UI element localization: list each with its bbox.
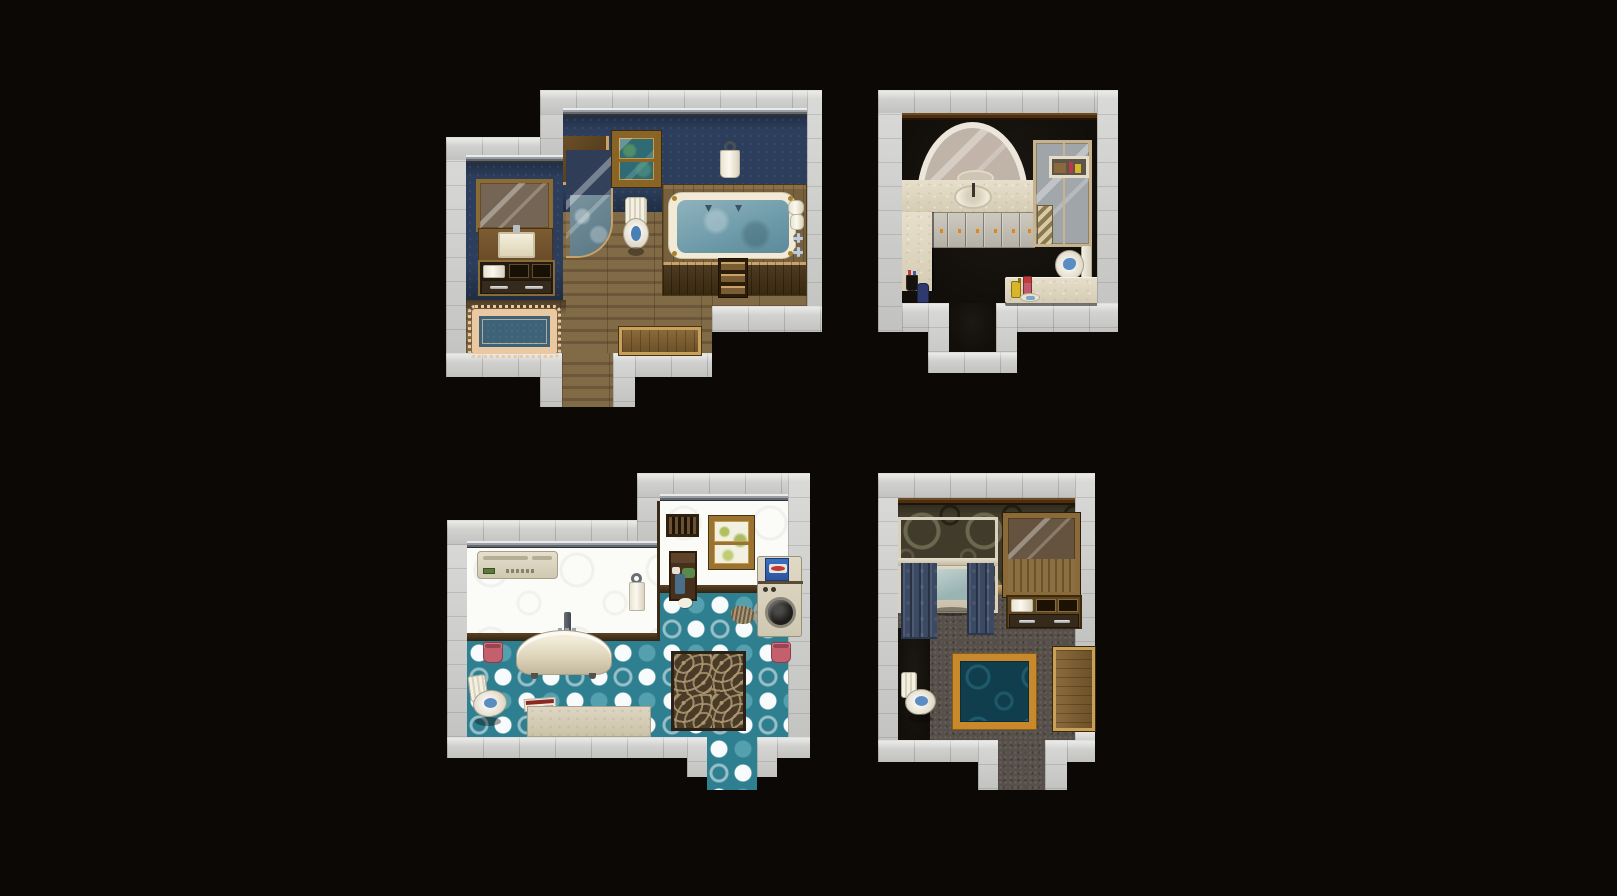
room-navy-wood-bathroom [446,88,822,408]
tub-foot [589,673,596,679]
wall-left [446,137,466,375]
room-dark-spa-bathroom [878,473,1095,790]
vent-grate [666,514,699,537]
wall-doorway-right [1045,740,1067,790]
wall-bottom-right [1067,740,1095,762]
wall-cap [878,473,1095,498]
toilet-shadow [475,717,501,726]
pink-bucket[interactable] [483,642,503,663]
toilet[interactable] [623,195,649,258]
teal-rug [953,654,1036,729]
shelf-box [1054,163,1066,173]
blue-rug [472,309,557,354]
clothes-white [672,567,680,574]
sink-faucet-icon [972,183,975,197]
mirror-glass [1008,518,1075,559]
wall-bottom-right [1017,303,1118,332]
doorway-floor[interactable] [562,353,613,407]
faucet-cross [793,233,803,243]
knob [1028,229,1031,233]
doorway-floor[interactable] [998,740,1045,790]
shower-cabin[interactable] [1033,140,1092,247]
wall-faucet-handles[interactable] [791,232,806,258]
towel-roll [790,214,804,230]
mirror-glass [480,183,549,228]
tub-water-view [936,569,970,600]
rug-field [478,315,551,348]
wall-left [447,520,467,758]
platform-steps[interactable] [718,258,748,298]
toilet[interactable] [899,672,937,724]
wall-bottom-right [777,737,810,758]
towel-ring[interactable] [627,573,647,612]
washer-knob [763,587,768,592]
wall-doorway-right [613,353,635,407]
tub-bolt [672,196,677,201]
tub-foot [531,673,538,679]
drawer-handle [490,286,508,289]
wall-right [807,90,822,332]
wall-bottom [447,737,687,758]
blue-bottle[interactable] [917,283,929,303]
floor-mat [527,706,651,737]
drawer-handle [1054,620,1070,623]
wall-left [878,473,898,762]
towel-rolls[interactable] [786,200,807,232]
folded-towels [483,265,505,278]
toilet-water [631,226,641,241]
doorway-floor[interactable] [707,737,757,790]
washer-knob [771,587,776,592]
drawer-handle [525,286,543,289]
towel-ring[interactable] [717,141,743,180]
dropped-cloth [678,598,692,608]
ac-label [506,569,536,573]
towel-roll [788,200,804,215]
window-crossbar [619,158,654,162]
sink-counter[interactable] [478,228,553,262]
shower-curtain-right[interactable] [967,563,994,635]
wall-doorway-left [540,353,562,407]
cubby [1058,599,1078,612]
wall-rail-main [563,108,807,116]
bucket-rim [485,644,501,648]
wall-left [878,90,902,332]
drawer-handle [1019,620,1035,623]
room-marble-dark-bathroom [878,88,1118,373]
wooden-mat [619,327,701,355]
shelf-cubby [532,264,551,278]
shower-shelf [1049,156,1089,178]
toilet[interactable] [467,675,507,727]
tub-bolt [672,251,677,256]
toilet-water [484,698,497,708]
bathtub[interactable] [668,192,796,259]
sink-faucet-icon [513,225,520,233]
wall-bottom-left [878,740,978,762]
shower-curtain-left[interactable] [901,563,937,639]
window[interactable] [709,516,754,569]
wall-right [1097,90,1118,332]
toilet-water [915,696,928,706]
wall-bottom-mid [635,353,712,377]
wall-bottom-left [902,303,928,332]
shower-glass-sheen [566,150,611,256]
cubby [1036,599,1056,612]
hanging-towel [720,150,740,178]
wall-rail-right [660,494,788,501]
detergent-box[interactable] [765,558,789,581]
clawfoot-bathtub[interactable] [516,630,612,675]
cabinet-doors[interactable] [928,212,1035,248]
swirl-rug [671,651,746,731]
soap-dish[interactable] [1020,293,1040,302]
detergent-swoosh [771,566,785,571]
step-ladder [1037,205,1053,247]
soap [1026,296,1035,300]
oval-sink[interactable] [954,185,992,209]
wall-doorway-left [687,737,707,777]
wall-step-band [712,306,822,332]
air-conditioner[interactable] [477,551,558,579]
hanging-towel [629,582,645,611]
shelf-bottle [1075,164,1081,173]
window[interactable] [612,131,661,187]
wall-doorway-left [978,740,998,790]
toilet-base-shadow [628,247,644,256]
shelf-bottle [1069,162,1073,173]
knob [1012,229,1015,233]
washer-top-line [758,581,803,584]
ac-vent [532,556,552,560]
knob [976,229,979,233]
step [721,286,745,294]
wall-doorway-right [757,737,777,777]
clothes-blue [675,574,685,594]
folded-towels [1011,599,1033,612]
room-white-teal-bathroom [447,473,810,790]
ac-vent [483,556,528,560]
wall-rail-alcove [466,155,563,163]
bucket-rim [773,644,789,648]
bath-water [677,200,789,253]
pink-bucket[interactable] [771,642,791,663]
mirror-cabinet-mirror [1003,513,1080,597]
washer-door[interactable] [765,597,796,628]
mirror-cabinet-base[interactable] [1006,595,1082,629]
wooden-mat-east[interactable] [1053,647,1095,731]
doorway-floor[interactable] [949,303,996,352]
knob [940,229,943,233]
mirror-wood-slats [1008,559,1075,592]
toilet-shadow [908,714,932,723]
wall-cap [878,90,1118,113]
wall-rail [898,498,1075,505]
ac-display [483,568,495,574]
shower-stall[interactable] [566,150,613,258]
shelf-cubby [509,264,529,278]
wall-rail [902,113,1097,120]
bottle-spout [1018,278,1021,283]
wall-doorway-bottom [928,352,1017,373]
step [721,262,745,270]
step [721,274,745,282]
game-canvas [0,0,1617,896]
laundry-shelf[interactable] [669,551,697,601]
newspaper-headline [526,699,554,705]
vanity-shelf[interactable] [478,260,555,296]
mop-head [731,606,755,624]
sink-basin [498,232,535,258]
vanity-drawers[interactable] [481,280,552,294]
knob [958,229,961,233]
cabinet-drawers[interactable] [1009,614,1079,628]
wall-rail-left [467,541,660,548]
window-crossbar [714,541,749,545]
faucet-cross [793,247,803,257]
knob [994,229,997,233]
